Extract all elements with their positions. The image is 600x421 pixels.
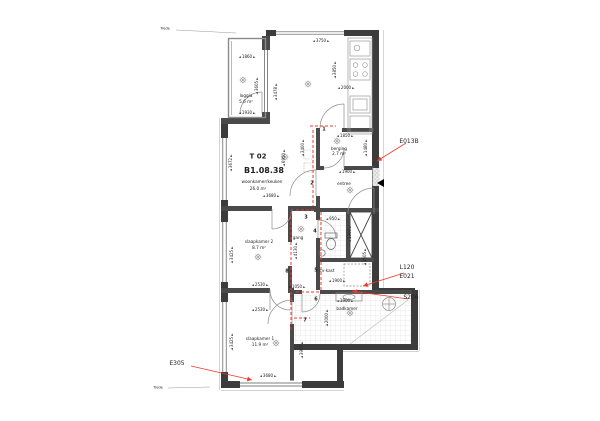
- floorplan-canvas: T 02 B1.08.38 woonkamer/keuken 26.0 m² l…: [0, 0, 600, 421]
- dim-living-width-top: 3750: [312, 39, 329, 43]
- note-trede-bottom: Trede: [153, 386, 163, 390]
- dim-berging-width: 1850: [336, 134, 353, 138]
- dim-slaapkamer1-width-bottom: 3680: [259, 374, 276, 378]
- dim-wc-height: 1300: [348, 225, 352, 242]
- dim-loggia-width: 1860: [238, 55, 255, 59]
- dim-living-width-bottom: 3680: [262, 194, 279, 198]
- dim-wc-width: 950: [326, 217, 341, 221]
- dim-living-height: 6950: [282, 149, 286, 166]
- route-marker-7: 7: [303, 319, 306, 324]
- dim-slaapkamer1-height-right: 3905: [300, 341, 304, 358]
- room-label-badkamer: badkamer: [336, 307, 357, 311]
- dim-badkamer-width: 1900: [336, 299, 353, 303]
- room-label-slaapkamer1: slaapkamer 1: [246, 337, 274, 341]
- dim-loggia-inner-height: 3478: [274, 83, 278, 100]
- route-marker-4: 4: [313, 230, 316, 235]
- dim-berging-height: 1480: [364, 139, 368, 156]
- dim-loggia-height: 3605: [255, 77, 259, 94]
- dim-gang-height: 4130: [294, 242, 298, 259]
- annotation-e021: E021: [399, 274, 414, 280]
- room-label-cv-kast: cv-kast: [320, 269, 335, 273]
- room-area-slaapkamer2: 8.7 m²: [252, 246, 266, 250]
- room-area-slaapkamer1: 11.9 m²: [252, 343, 268, 347]
- dim-kitchen-height: 3850: [333, 61, 337, 78]
- dim-slaapkamer1-height: 3425: [230, 333, 234, 350]
- room-area-loggia: 5.6 m²: [239, 100, 253, 104]
- unit-number: B1.08.38: [244, 167, 284, 175]
- dim-living-height-left: 3672: [229, 154, 233, 171]
- dim-shaft-height: 1505: [363, 248, 367, 265]
- annotation-e305: E305: [169, 361, 184, 367]
- route-marker-2: 2: [310, 182, 313, 187]
- dim-gang-width: 1050: [288, 285, 305, 289]
- route-marker-5: 5: [314, 269, 317, 274]
- room-area-berging: 2.7 m²: [332, 152, 346, 156]
- room-label-gang: gang: [293, 236, 304, 240]
- route-marker-8: 8: [285, 270, 288, 275]
- dim-living-inner-height: 3400: [301, 139, 305, 156]
- dim-entree-width: 1900: [338, 170, 355, 174]
- route-marker-3: 3: [304, 216, 307, 221]
- annotation-s206: S206: [403, 295, 418, 301]
- dim-badkamer-height: 2000: [325, 309, 329, 326]
- dim-kitchen-width: 2000: [337, 86, 354, 90]
- dim-slaapkamer2-height: 3425: [230, 246, 234, 263]
- room-label-slaapkamer2: slaapkamer 2: [245, 240, 273, 244]
- dim-loggia-width-lower: 1930: [238, 111, 255, 115]
- room-label-loggia: loggia: [240, 94, 253, 98]
- dim-slaapkamer2-width: 2530: [251, 283, 268, 287]
- dim-cv-width: 1900: [328, 279, 345, 283]
- label-layer: T 02 B1.08.38 woonkamer/keuken 26.0 m² l…: [0, 0, 600, 421]
- unit-id: T 02: [250, 154, 267, 161]
- annotation-e013b: E013B: [399, 139, 418, 145]
- unit-area: 26.0 m²: [250, 187, 266, 191]
- unit-function: woonkamer/keuken: [242, 180, 283, 184]
- route-marker-6: 6: [314, 298, 317, 303]
- route-marker-1: 1: [322, 128, 325, 133]
- dim-slaapkamer1-width: 2530: [251, 308, 268, 312]
- room-label-entree: entree: [337, 182, 351, 186]
- note-trede-top: Trede: [160, 27, 170, 31]
- annotation-l120: L120: [400, 265, 415, 271]
